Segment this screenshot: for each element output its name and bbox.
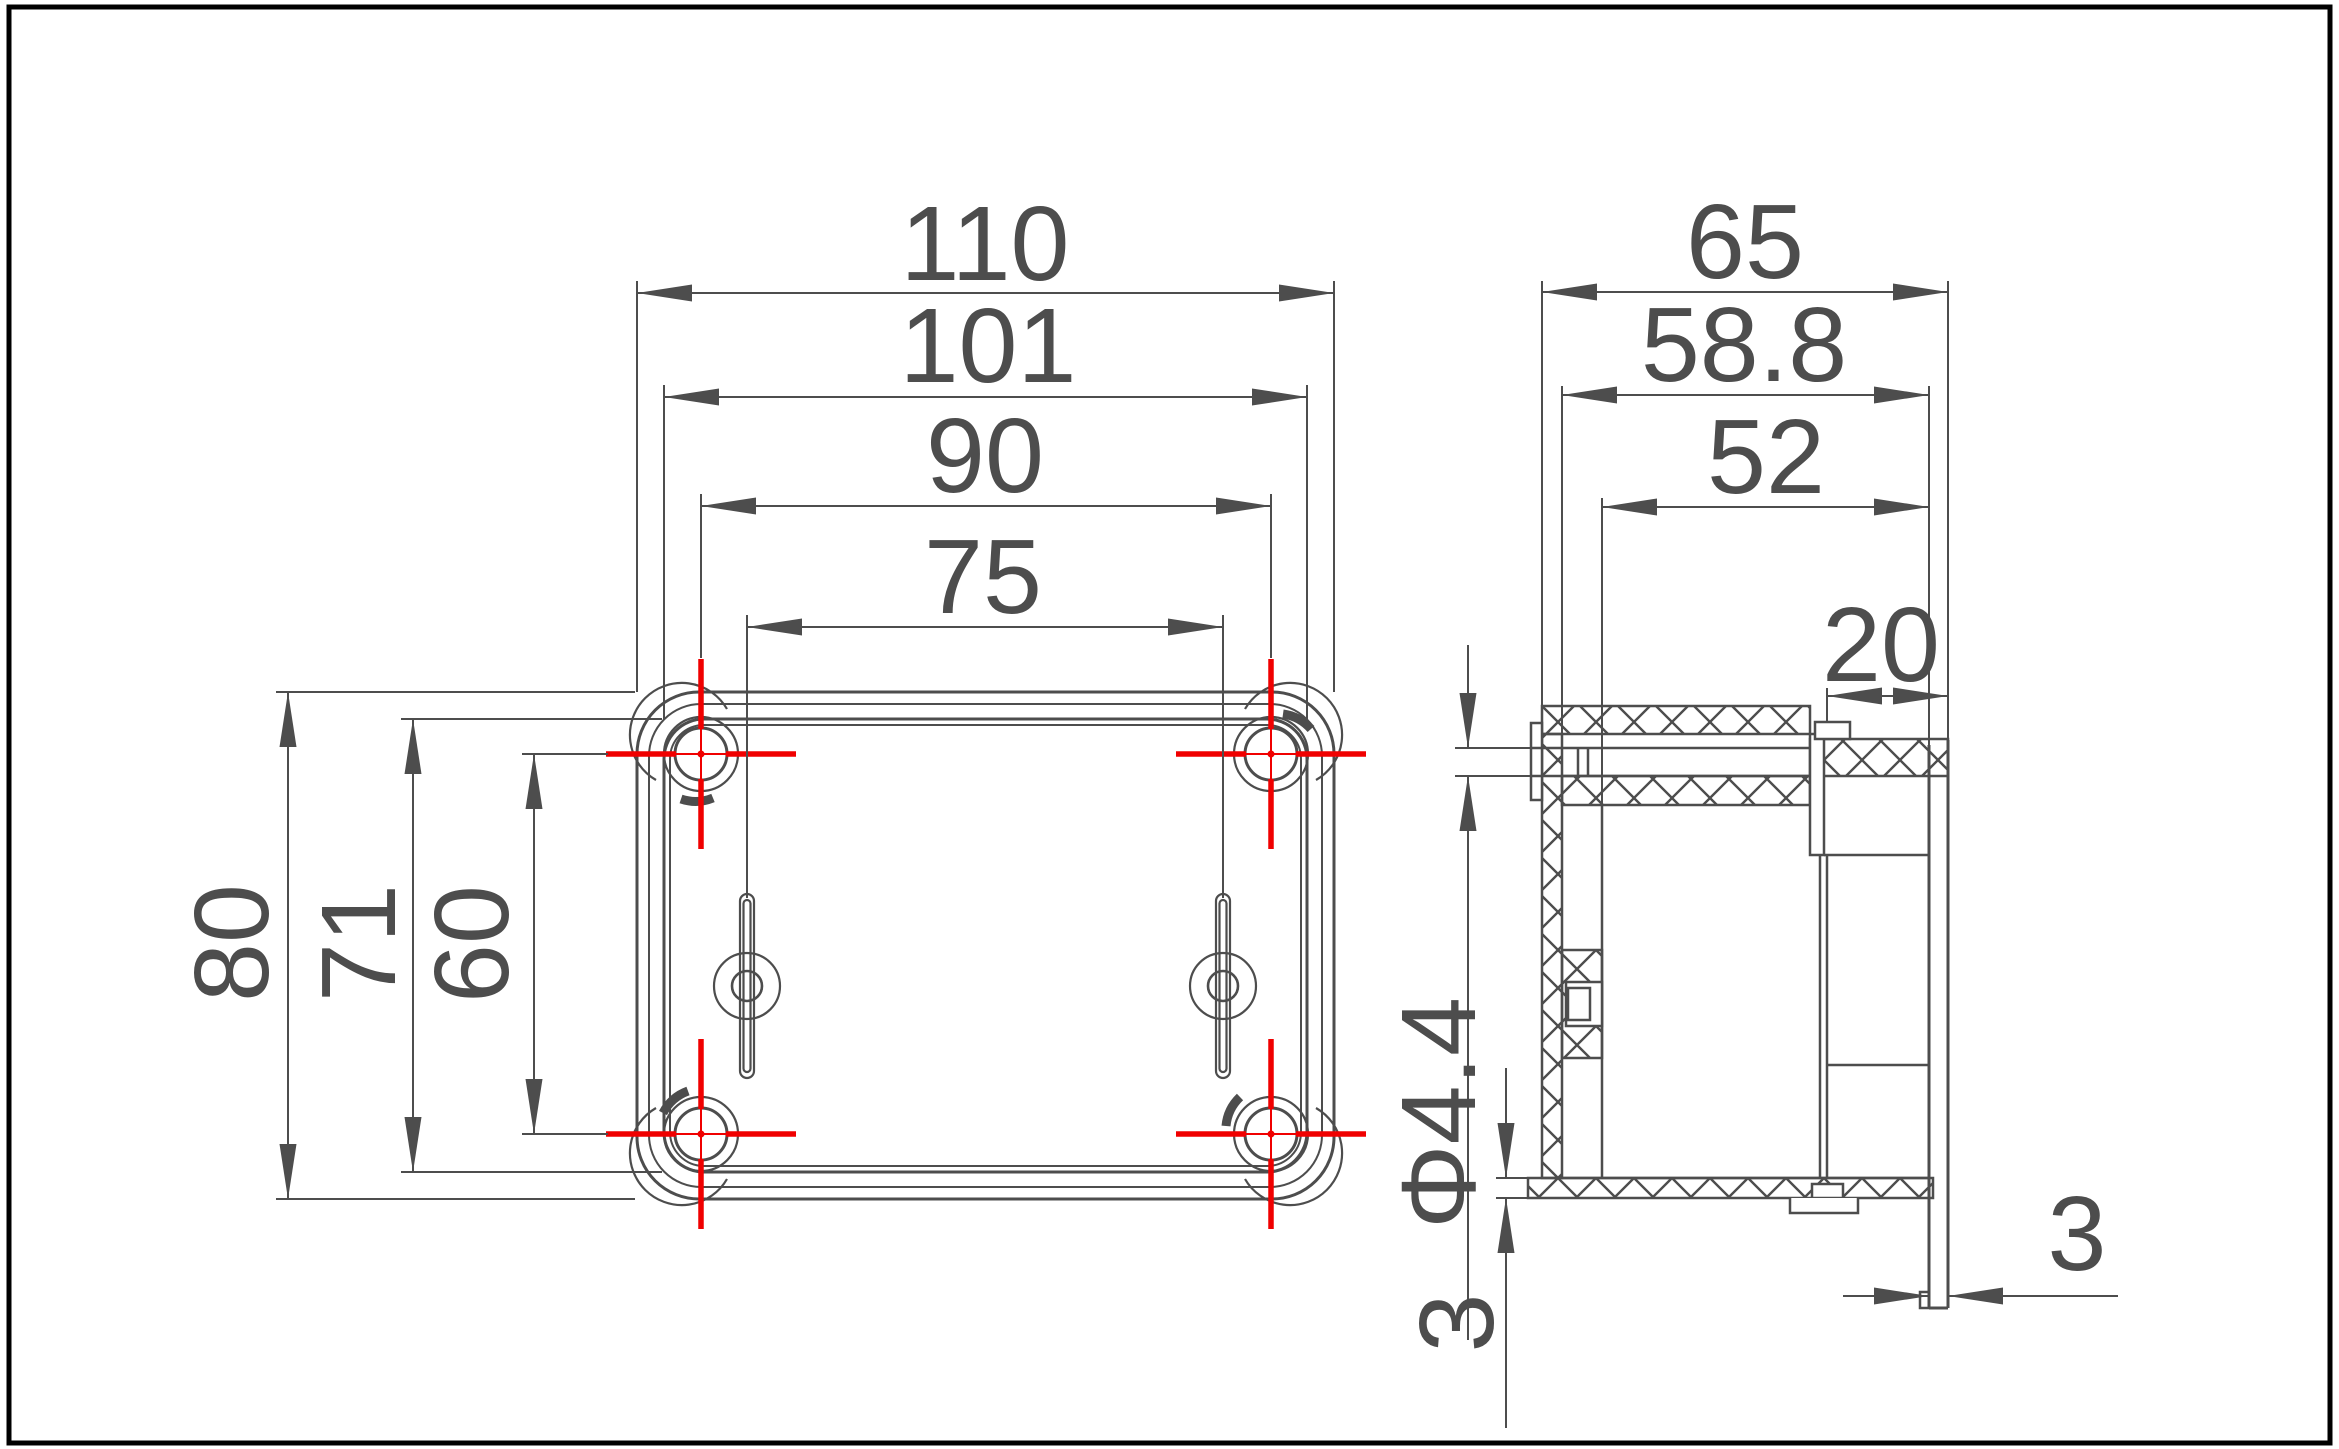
- section-lid-flange: [1810, 739, 1948, 776]
- dim-screw-hole-diameter-label: Φ4.4: [1380, 997, 1498, 1229]
- dim-keyhole-spacing-label: 75: [924, 518, 1042, 636]
- dim-overall-depth-label: 65: [1686, 183, 1804, 301]
- center-mark-top-right: [1176, 659, 1366, 849]
- section-top-wall: [1542, 706, 1810, 734]
- plan-view: [606, 659, 1366, 1229]
- corner-screw-boss-bottom-left: [630, 1091, 738, 1205]
- section-lid: [1920, 740, 1948, 1308]
- dim-overall-width-label: 110: [901, 185, 1070, 303]
- dim-lid-thickness-label: 3: [2048, 1175, 2107, 1293]
- corner-screw-boss-top-right: [1234, 683, 1342, 791]
- dim-inner-depth-label: 52: [1707, 398, 1825, 516]
- technical-drawing-canvas: 110 101 90 75 80 71 60: [0, 0, 2339, 1449]
- plan-seal-groove-outline: [670, 725, 1301, 1166]
- dim-inner-height-label: 71: [300, 884, 418, 1002]
- screw-hole-dimension: [1455, 645, 1531, 1340]
- dim-lid-overlap-label: 20: [1822, 586, 1940, 704]
- corner-screw-boss-bottom-right: [1226, 1097, 1342, 1205]
- plan-inner-outline: [664, 719, 1307, 1172]
- keyhole-slot-left: [714, 894, 780, 1078]
- dim-inner-depth-outer-label: 58.8: [1641, 286, 1847, 404]
- drawing-page: 110 101 90 75 80 71 60: [0, 0, 2339, 1449]
- section-boss-underside: [1562, 776, 1810, 805]
- section-view: [1528, 706, 1948, 1308]
- dim-overall-height-label: 80: [173, 884, 291, 1002]
- section-bottom-wall: [1528, 1178, 1933, 1198]
- section-left-wall: [1542, 734, 1562, 1178]
- dim-hole-spacing-h-label: 90: [926, 397, 1044, 515]
- dim-inner-width-label: 101: [900, 287, 1077, 405]
- corner-screw-boss-top-left: [630, 683, 738, 801]
- center-mark-top-left: [606, 659, 796, 849]
- keyhole-slot-right: [1190, 894, 1256, 1078]
- dim-hole-spacing-v-label: 60: [413, 885, 531, 1003]
- dim-bottom-wall-thickness-label: 3: [1398, 1294, 1516, 1353]
